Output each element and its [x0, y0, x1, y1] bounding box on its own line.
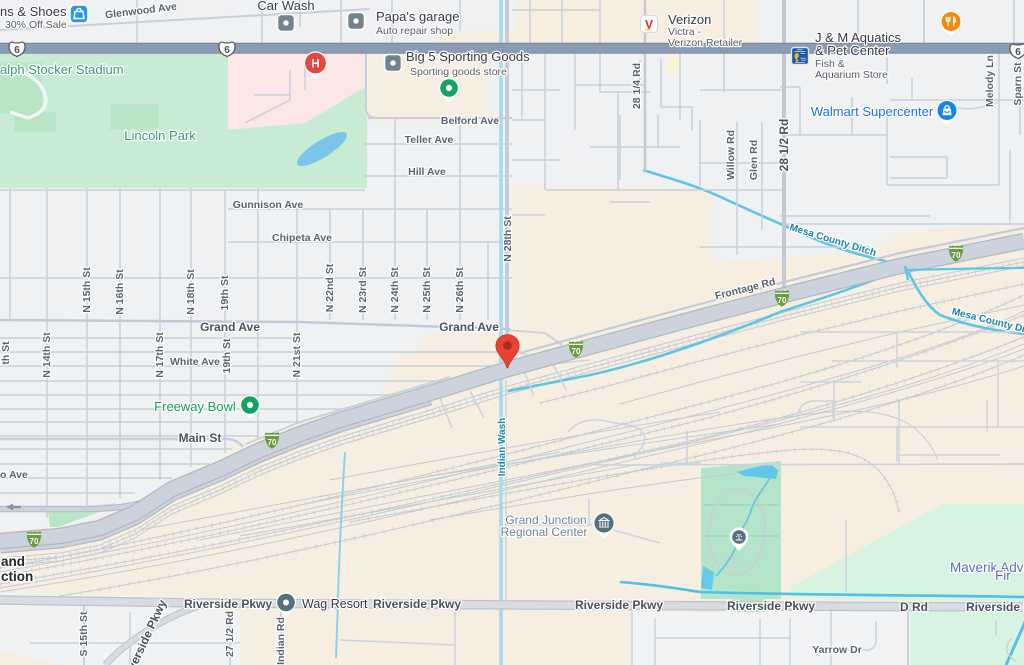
svg-text:Wag Resort: Wag Resort [302, 597, 368, 611]
svg-text:H: H [311, 58, 319, 70]
svg-text:Verizon: Verizon [668, 12, 711, 27]
svg-text:N 15th St: N 15th St [81, 267, 93, 313]
svg-text:Verizon Retailer: Verizon Retailer [668, 37, 743, 49]
svg-text:N 17th St: N 17th St [154, 332, 166, 378]
svg-text:alph Stocker Stadium: alph Stocker Stadium [0, 62, 124, 77]
svg-text:19th St: 19th St [219, 275, 231, 311]
svg-text:Lincoln Park: Lincoln Park [124, 128, 196, 143]
svg-text:Melody Ln: Melody Ln [984, 55, 996, 107]
svg-text:ction: ction [1, 569, 33, 584]
svg-text:Sparn St: Sparn St [1012, 62, 1024, 106]
svg-text:Chipeta Ave: Chipeta Ave [272, 232, 332, 244]
svg-text:o Ave: o Ave [0, 469, 28, 481]
svg-text:Teller Ave: Teller Ave [405, 134, 454, 146]
svg-text:Fir: Fir [995, 568, 1011, 583]
svg-text:N 26th St: N 26th St [454, 267, 466, 313]
svg-text:Riverside Pkwy: Riverside Pkwy [575, 598, 663, 612]
svg-text:Big 5 Sporting Goods: Big 5 Sporting Goods [406, 49, 530, 64]
svg-text:Grand Ave: Grand Ave [439, 320, 499, 334]
svg-text:Willow Rd: Willow Rd [725, 130, 737, 180]
svg-text:Hill Ave: Hill Ave [408, 166, 446, 178]
svg-text:Indian Wash: Indian Wash [497, 418, 508, 477]
svg-text:Sporting goods store: Sporting goods store [410, 66, 507, 78]
svg-text:Aquarium Store: Aquarium Store [815, 69, 888, 81]
svg-text:Freeway Bowl: Freeway Bowl [154, 399, 236, 414]
svg-text:Gunnison Ave: Gunnison Ave [233, 199, 304, 211]
svg-text:N 21st St: N 21st St [291, 332, 303, 377]
svg-text:30% Off Sale: 30% Off Sale [5, 19, 67, 31]
svg-text:Walmart Supercenter: Walmart Supercenter [811, 104, 934, 119]
svg-text:Car Wash: Car Wash [257, 0, 314, 13]
svg-text:Glen Rd: Glen Rd [748, 140, 760, 180]
svg-text:ns & Shoes: ns & Shoes [0, 4, 67, 19]
svg-text:Main St: Main St [179, 431, 222, 445]
svg-text:N 23rd St: N 23rd St [357, 266, 369, 313]
svg-text:D Rd: D Rd [900, 600, 928, 614]
svg-text:Papa's garage: Papa's garage [376, 9, 459, 24]
svg-text:Auto repair shop: Auto repair shop [376, 25, 453, 37]
svg-text:Regional Center: Regional Center [501, 525, 588, 539]
svg-text:Grand Ave: Grand Ave [200, 320, 260, 334]
svg-text:and: and [1, 554, 25, 569]
svg-text:N 25th St: N 25th St [421, 267, 433, 313]
svg-text:N 28th St: N 28th St [502, 216, 514, 262]
svg-text:28 1/4 Rd: 28 1/4 Rd [631, 63, 643, 109]
svg-text:Yarrow Dr: Yarrow Dr [812, 644, 862, 656]
svg-text:N 22nd St: N 22nd St [324, 263, 336, 312]
svg-text:Belford Ave: Belford Ave [441, 115, 499, 127]
svg-text:N 16th St: N 16th St [114, 269, 126, 315]
svg-text:Riverside Pkwy: Riverside Pkwy [966, 600, 1024, 614]
svg-text:N 24th St: N 24th St [389, 267, 401, 313]
svg-text:27 1/2 Rd: 27 1/2 Rd [224, 611, 236, 657]
svg-text:N 18th St: N 18th St [185, 269, 197, 315]
svg-text:Riverside Pkwy: Riverside Pkwy [184, 597, 272, 611]
svg-text:Riverside Pkwy: Riverside Pkwy [727, 599, 815, 613]
svg-text:Indian Rd: Indian Rd [275, 617, 287, 665]
svg-text:S 15th St: S 15th St [78, 611, 90, 656]
svg-text:Riverside Pkwy: Riverside Pkwy [373, 597, 461, 611]
svg-text:& Pet Center: & Pet Center [815, 43, 890, 58]
svg-text:Maverik Adve: Maverik Adve [950, 560, 1024, 575]
svg-text:N 14th St: N 14th St [41, 332, 53, 378]
svg-text:19th St: 19th St [221, 338, 233, 374]
svg-text:th St: th St [0, 341, 12, 365]
svg-text:White Ave: White Ave [170, 356, 220, 368]
svg-text:28 1/2 Rd: 28 1/2 Rd [777, 119, 791, 172]
